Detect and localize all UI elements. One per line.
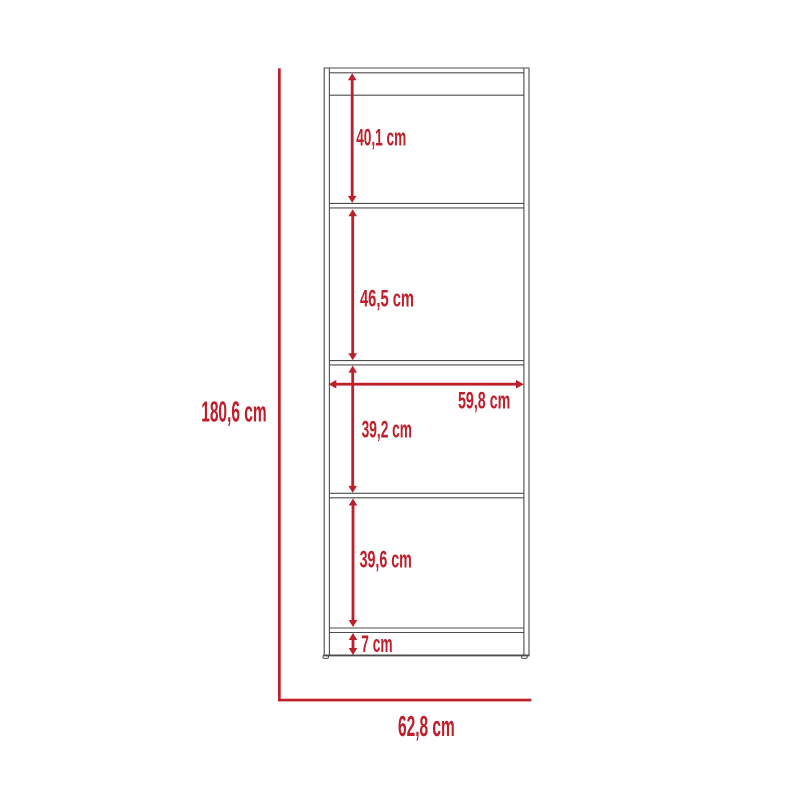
svg-text:62,8 cm: 62,8 cm [398, 711, 455, 743]
svg-text:7 cm: 7 cm [361, 631, 392, 658]
svg-text:59,8 cm: 59,8 cm [458, 388, 510, 415]
svg-text:39,2 cm: 39,2 cm [362, 417, 412, 444]
svg-text:40,1 cm: 40,1 cm [356, 125, 406, 152]
svg-text:46,5 cm: 46,5 cm [360, 285, 414, 312]
svg-text:180,6 cm: 180,6 cm [201, 396, 267, 428]
svg-text:39,6 cm: 39,6 cm [360, 546, 412, 573]
